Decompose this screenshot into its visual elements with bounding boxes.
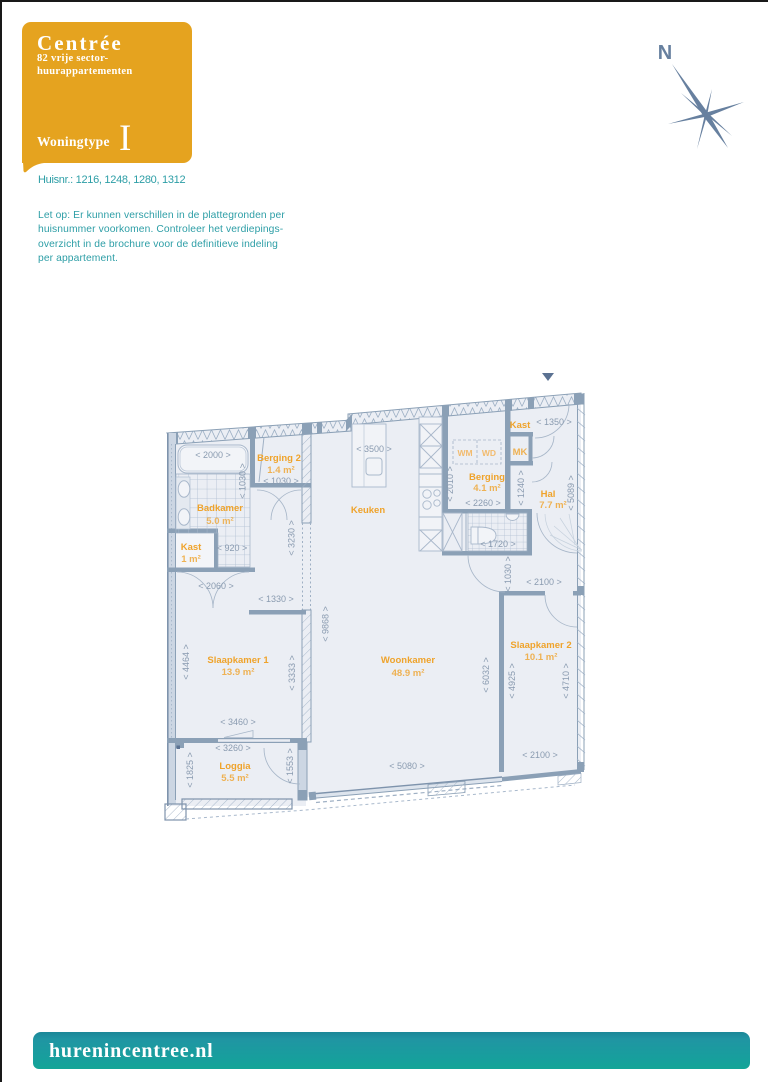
svg-text:WD: WD — [482, 448, 496, 458]
svg-text:< 2100 >: < 2100 > — [526, 577, 562, 587]
svg-text:WM: WM — [457, 448, 472, 458]
svg-text:< 4464 >: < 4464 > — [181, 644, 191, 680]
svg-text:< 1330 >: < 1330 > — [258, 594, 294, 604]
svg-text:Woonkamer: Woonkamer — [381, 655, 436, 666]
svg-text:< 1825 >: < 1825 > — [185, 752, 195, 788]
svg-text:< 2000 >: < 2000 > — [195, 450, 231, 460]
svg-text:Kast: Kast — [181, 542, 202, 553]
svg-text:< 3230 >: < 3230 > — [287, 520, 297, 556]
svg-text:< 4925 >: < 4925 > — [507, 663, 517, 699]
svg-text:< 6032 >: < 6032 > — [481, 657, 491, 693]
svg-text:< 2260 >: < 2260 > — [465, 498, 501, 508]
svg-text:< 5080 >: < 5080 > — [389, 761, 425, 771]
svg-text:48.9 m²: 48.9 m² — [392, 668, 425, 679]
svg-text:Hal: Hal — [541, 489, 556, 500]
svg-text:10.1 m²: 10.1 m² — [525, 652, 558, 663]
svg-text:< 3460 >: < 3460 > — [220, 717, 256, 727]
svg-text:Berging: Berging — [469, 472, 505, 483]
svg-text:< 1720 >: < 1720 > — [480, 539, 516, 549]
svg-text:< 2060 >: < 2060 > — [198, 581, 234, 591]
svg-text:< 920 >: < 920 > — [217, 543, 248, 553]
svg-text:< 1030 >: < 1030 > — [263, 476, 299, 486]
svg-text:Slaapkamer 2: Slaapkamer 2 — [510, 640, 571, 651]
svg-text:< 2010 >: < 2010 > — [445, 466, 455, 502]
svg-text:5.0 m²: 5.0 m² — [206, 516, 233, 527]
svg-text:< 1350 >: < 1350 > — [536, 417, 572, 427]
svg-text:13.9 m²: 13.9 m² — [222, 667, 255, 678]
svg-text:< 2100 >: < 2100 > — [522, 750, 558, 760]
svg-text:< 5089 >: < 5089 > — [566, 475, 576, 511]
svg-text:Kast: Kast — [510, 420, 531, 431]
svg-text:< 4710 >: < 4710 > — [561, 663, 571, 699]
svg-text:< 9868 >: < 9868 > — [321, 606, 331, 642]
svg-text:Keuken: Keuken — [351, 505, 386, 516]
svg-text:Loggia: Loggia — [219, 761, 251, 772]
svg-text:1.4 m²: 1.4 m² — [267, 465, 294, 476]
svg-text:< 3333 >: < 3333 > — [287, 655, 297, 691]
svg-text:Berging 2: Berging 2 — [257, 453, 301, 464]
svg-text:< 1553 >: < 1553 > — [285, 748, 295, 784]
svg-text:MK: MK — [513, 447, 528, 458]
svg-text:< 1030 >: < 1030 > — [238, 463, 248, 499]
svg-text:Badkamer: Badkamer — [197, 503, 243, 514]
svg-text:5.5 m²: 5.5 m² — [221, 773, 248, 784]
svg-text:1 m²: 1 m² — [181, 554, 201, 565]
svg-text:N: N — [658, 42, 672, 64]
svg-text:< 3500 >: < 3500 > — [356, 444, 392, 454]
svg-text:4.1 m²: 4.1 m² — [473, 483, 500, 494]
svg-text:< 1240 >: < 1240 > — [516, 470, 526, 506]
svg-text:7.7 m²: 7.7 m² — [539, 500, 566, 511]
svg-text:< 3260 >: < 3260 > — [215, 743, 251, 753]
svg-text:< 1030 >: < 1030 > — [503, 556, 513, 592]
svg-text:Slaapkamer 1: Slaapkamer 1 — [207, 655, 269, 666]
